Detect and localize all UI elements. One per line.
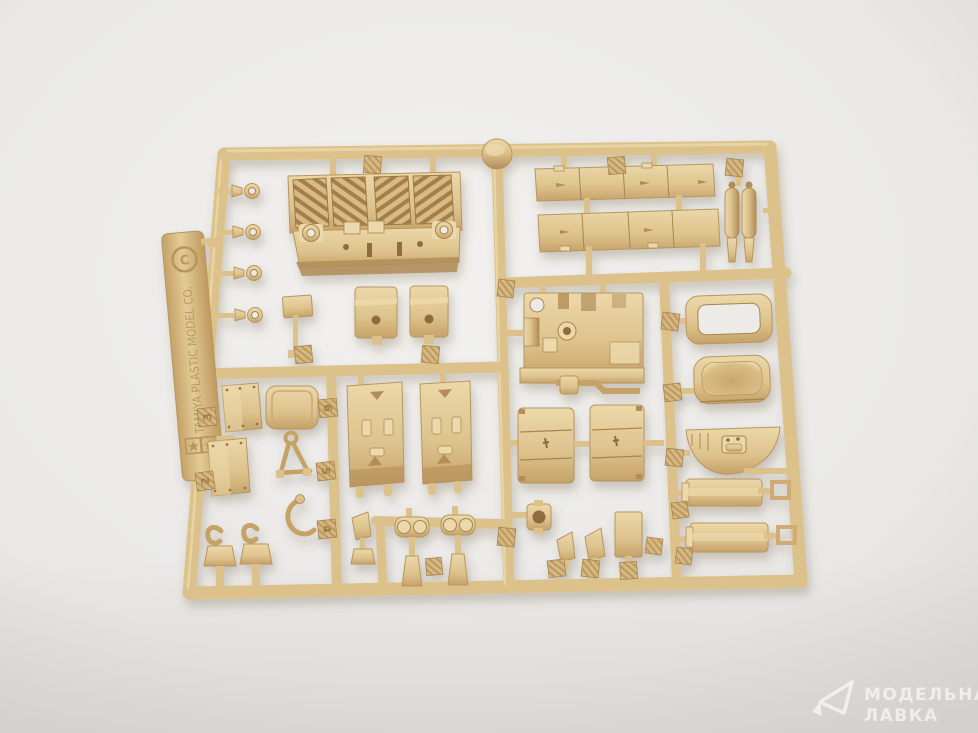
stowage-box-part (355, 287, 397, 345)
part-tab-2: 2 (195, 471, 215, 491)
lifting-eye (299, 224, 323, 242)
part-tab-4: 4 (317, 519, 337, 539)
lifting-eye (432, 221, 456, 239)
stowage-box-part (410, 286, 448, 344)
firewall-part (505, 278, 644, 394)
part-tab-label: 5 (319, 466, 333, 475)
sprue-photo: C TAMIYA PLASTIC MODEL CO. (0, 0, 978, 733)
armor-plate-part (222, 383, 262, 432)
part-tab-label: 3 (201, 412, 215, 421)
copyright-letter: C (179, 253, 190, 269)
side-panel-part (347, 368, 404, 498)
side-panel-part (420, 366, 472, 495)
injection-gate-boss (482, 139, 512, 169)
seat-back-part (266, 386, 318, 429)
watermark-line2: ЛАВКА (864, 706, 939, 726)
part-tab-3: 3 (197, 407, 217, 427)
part-tab-6: 6 (318, 398, 338, 418)
watermark-line1: МОДЕЛЬНАЯ (864, 685, 978, 705)
part-tab-5: 5 (316, 461, 336, 481)
part-tab-label: 6 (321, 404, 335, 413)
